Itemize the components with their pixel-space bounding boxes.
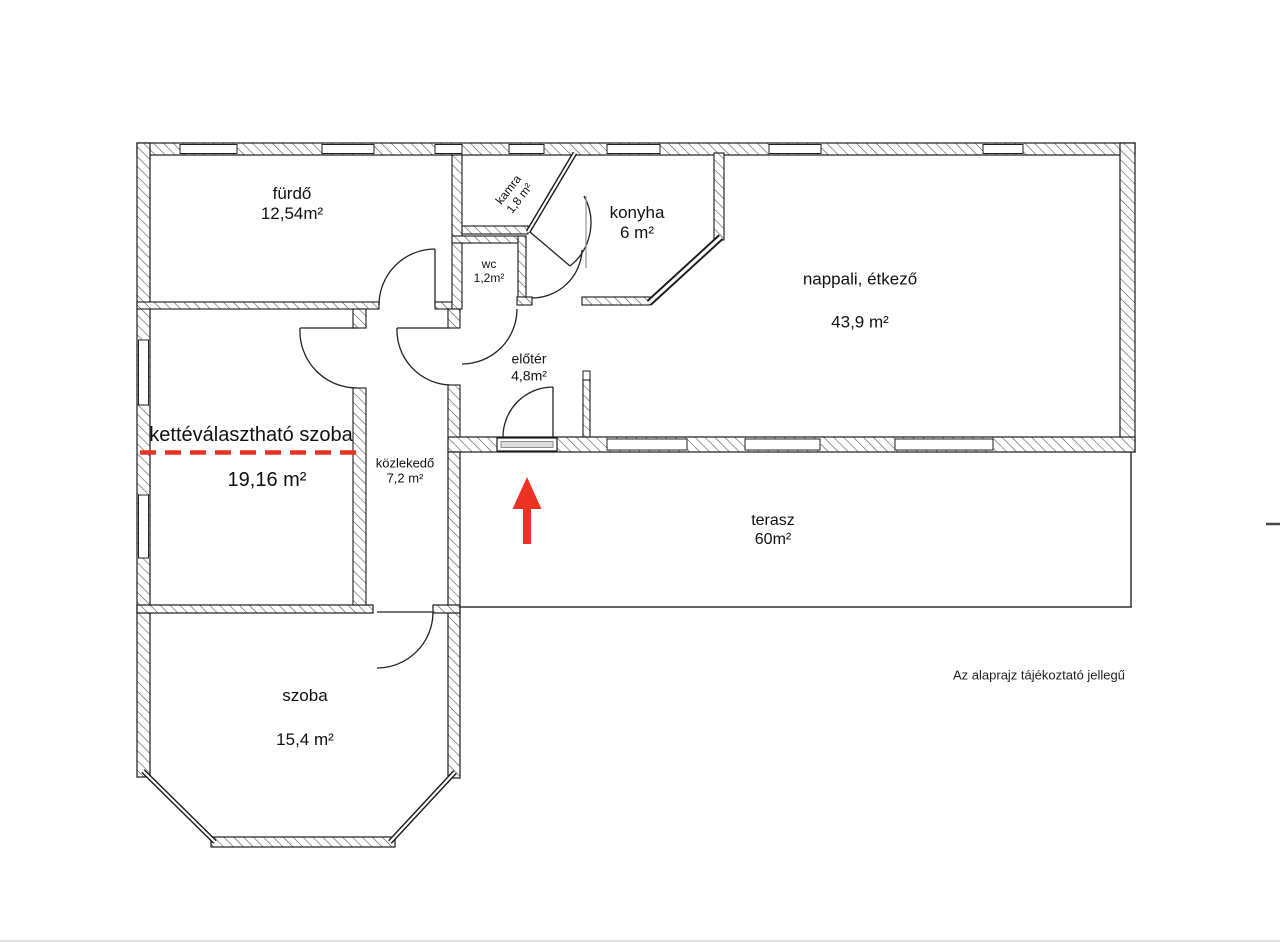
kamra-door-arc [570,196,591,266]
disclaimer-text: Az alaprajz tájékoztató jellegű [953,667,1125,682]
up-arrow-icon [513,477,542,544]
bay-window [143,771,455,842]
room-label-eloter: előtér 4,8m² [511,350,547,383]
konyha-door-arc [532,250,582,298]
floor-plan-drawing [0,0,1280,942]
room-label-furdo: fürdő 12,54m² [261,184,323,224]
wc-door-arc [462,309,517,364]
szoba-door-arc [377,612,433,668]
room-label-nappali: nappali, étkező 43,9 m² [803,269,917,332]
kozlekedo-door-arc [397,328,450,385]
kamra-door-leaf [530,232,570,266]
entrance-door-arc [503,387,553,437]
entrance-threshold [497,438,557,451]
room-label-terasz: terasz 60m² [751,512,795,550]
room-label-konyha: konyha 6 m² [610,203,665,243]
floor-plan: fürdő 12,54m² kamra 1,8 m² konyha 6 m² w… [0,0,1280,942]
room-label-kozlekedo: közlekedő 7,2 m² [376,456,435,487]
wall-stub-cap [583,371,590,380]
room-label-kettevalaszthato: kettéválasztható szoba [149,424,352,448]
kettev-door-arc [300,328,357,388]
furdo-door-arc [379,249,435,305]
room-label-szoba: szoba 15,4 m² [276,686,334,750]
room-label-wc: wc 1,2m² [474,257,505,285]
room-area-kettevalaszthato: 19,16 m² [228,469,307,493]
terasz-outline [459,452,1132,607]
